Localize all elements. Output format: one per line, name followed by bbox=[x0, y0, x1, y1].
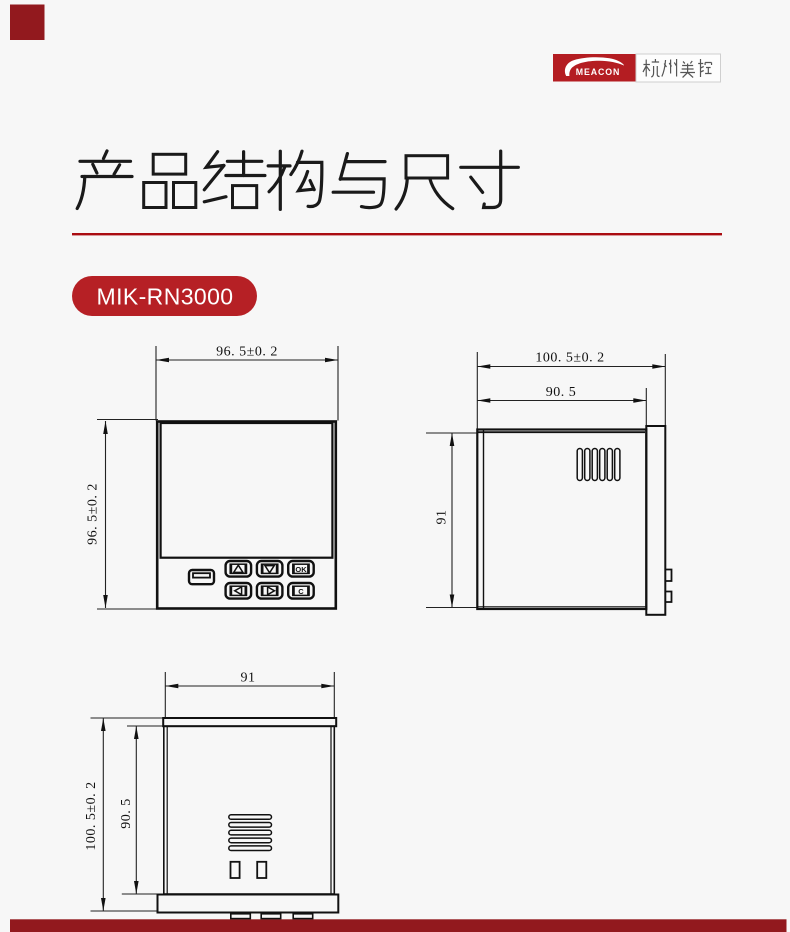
svg-text:90. 5: 90. 5 bbox=[119, 798, 134, 829]
svg-text:91: 91 bbox=[241, 671, 256, 686]
svg-text:100. 5±0. 2: 100. 5±0. 2 bbox=[84, 781, 99, 850]
svg-text:C: C bbox=[298, 587, 304, 596]
svg-text:MEACON: MEACON bbox=[576, 67, 621, 77]
svg-text:90. 5: 90. 5 bbox=[546, 385, 577, 400]
svg-text:OK: OK bbox=[295, 565, 307, 574]
svg-text:96. 5±0. 2: 96. 5±0. 2 bbox=[216, 345, 278, 360]
svg-text:100. 5±0. 2: 100. 5±0. 2 bbox=[535, 351, 604, 366]
svg-text:91: 91 bbox=[435, 510, 450, 525]
svg-text:96. 5±0. 2: 96. 5±0. 2 bbox=[86, 483, 101, 545]
svg-text:MIK-RN3000: MIK-RN3000 bbox=[97, 284, 234, 310]
